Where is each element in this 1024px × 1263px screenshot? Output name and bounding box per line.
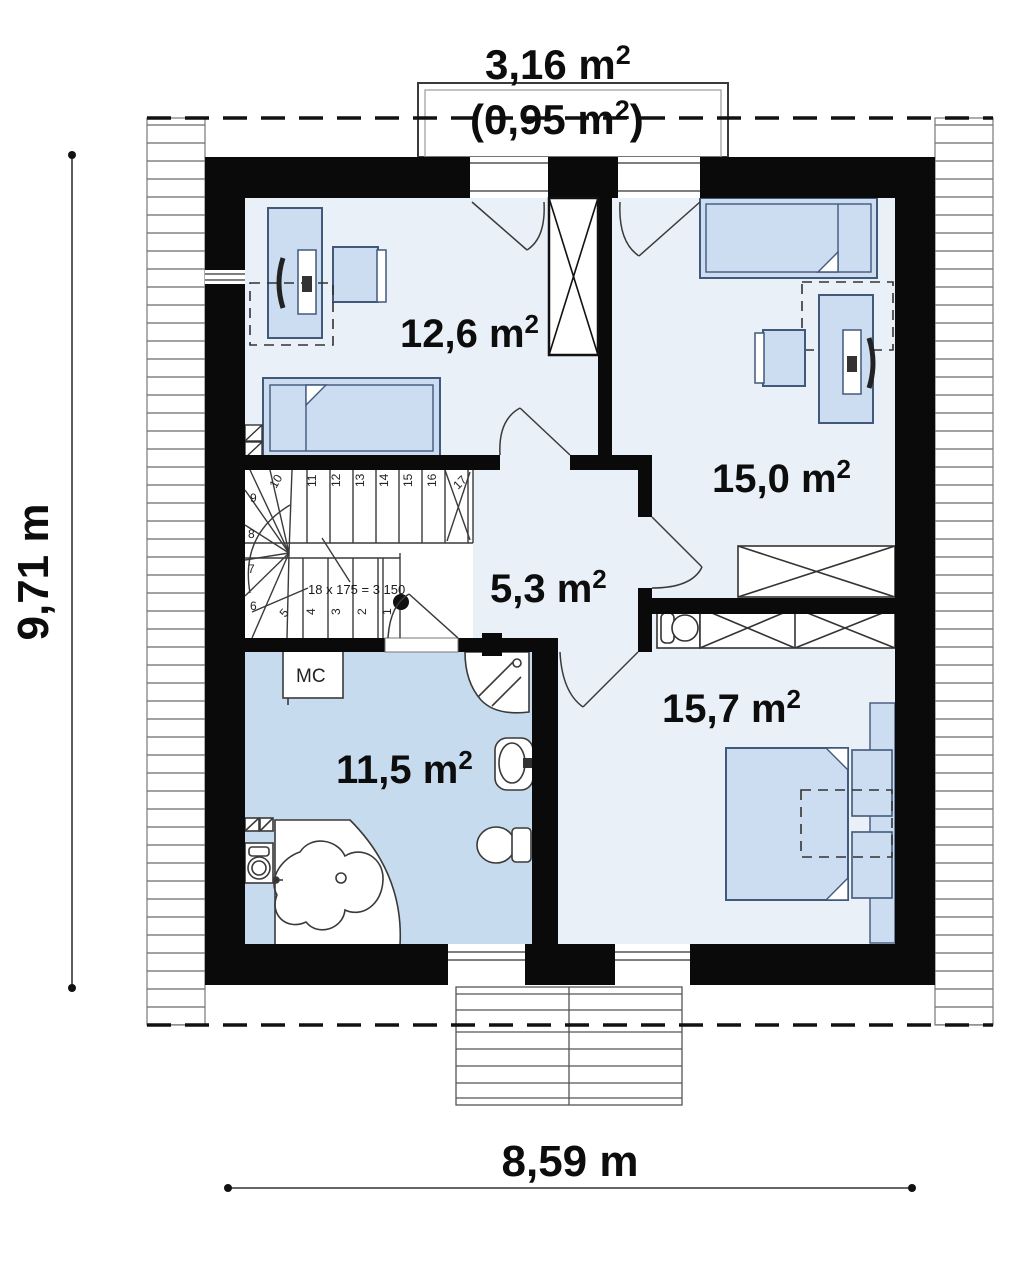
room-area-label-bathroom: 11,5 m2 [336,745,473,792]
svg-text:11: 11 [305,474,319,487]
room-area-label-bedroom-bottom-right: 15,7 m2 [662,684,801,731]
chair [333,247,378,302]
svg-text:15: 15 [401,473,415,487]
wardrobe [738,546,895,597]
terrace-stairs [456,987,682,1105]
svg-text:6: 6 [250,599,257,613]
svg-text:12: 12 [329,473,343,487]
window [205,270,245,284]
radiator-icon [245,425,262,458]
floor-plan-drawing: 1 2 3 4 5 6 7 8 9 10 11 12 13 14 15 16 1… [0,0,1024,1263]
room-area-label-bedroom-top-right: 15,0 m2 [712,454,851,501]
dimension-width-label: 8,59 m [502,1137,639,1186]
chimney-shaft [549,198,598,355]
nightstand [852,750,892,816]
chair [763,330,805,386]
stair-note: 18 x 175 = 3 150 [308,582,405,597]
dimension-bottom: 8,59 m [224,1137,916,1192]
toilet-icon [477,827,531,863]
balcony-area-label: 3,16 m2 [485,40,631,88]
sink-icon [495,738,533,790]
dimension-height-label: 9,71 m [9,504,58,641]
svg-text:2: 2 [355,608,369,615]
svg-text:3: 3 [329,608,343,615]
room-area-label-bedroom-top-left: 12,6 m2 [400,309,539,356]
svg-text:1: 1 [380,608,394,615]
svg-text:9: 9 [250,491,257,505]
washing-machine-icon [245,843,273,883]
room-area-label-hall: 5,3 m2 [490,564,607,611]
svg-text:8: 8 [248,527,255,541]
svg-text:13: 13 [353,473,367,487]
svg-text:14: 14 [377,473,391,487]
closet-mc-label: MC [296,666,326,687]
svg-text:7: 7 [248,562,255,576]
nightstand [852,832,892,898]
svg-text:16: 16 [425,473,439,487]
svg-text:4: 4 [304,608,318,615]
dimension-left: 9,71 m [9,151,76,992]
bed-single [263,378,440,458]
bed-single [700,198,877,278]
floor-plan-page: 1 2 3 4 5 6 7 8 9 10 11 12 13 14 15 16 1… [0,0,1024,1263]
radiator-icon [245,818,273,831]
